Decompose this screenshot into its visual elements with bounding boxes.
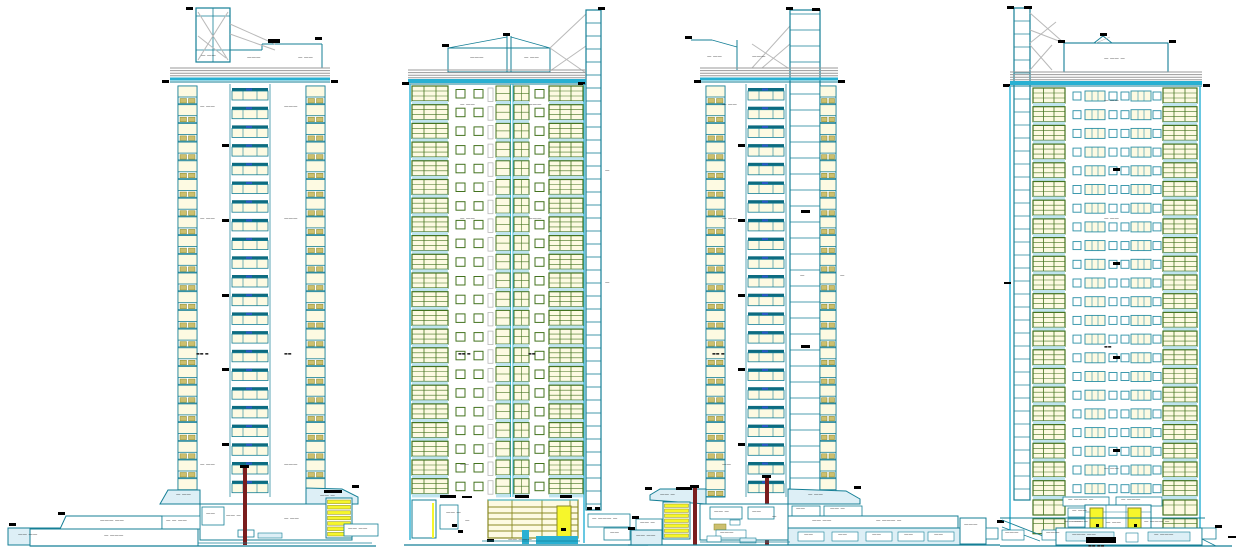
pilaster-panel (706, 236, 725, 247)
grid-window (1163, 443, 1197, 458)
grid-window (412, 367, 448, 382)
pilaster-vent (308, 99, 315, 104)
square-window (1073, 316, 1081, 324)
pilaster-vent (822, 211, 828, 216)
balcony-strip (488, 350, 493, 364)
grid-window (412, 273, 448, 288)
drawing-rect (801, 210, 810, 213)
balcony-strip (488, 443, 493, 457)
grid-window (549, 367, 583, 382)
dimension-marker (685, 36, 692, 39)
square-window (474, 333, 483, 342)
pilaster-vent (180, 211, 187, 216)
pilaster-vent (189, 398, 196, 403)
window (232, 110, 268, 119)
window (748, 110, 784, 119)
dimension-marker (1215, 525, 1222, 528)
window-vent (762, 406, 768, 408)
window (232, 203, 268, 212)
pilaster-vent (717, 155, 724, 160)
pilaster-vent (189, 248, 196, 253)
square-window (1153, 186, 1161, 194)
pilaster-vent (189, 211, 196, 216)
pilaster-vent (180, 416, 187, 421)
square-window (1109, 373, 1117, 381)
stair-flight (665, 519, 689, 522)
square-window (1073, 485, 1081, 493)
pilaster-vent (189, 267, 196, 272)
floor-band (496, 269, 510, 273)
pilaster-panel (820, 310, 836, 321)
balcony-strip (488, 107, 493, 121)
pilaster-vent (308, 229, 315, 234)
pilaster-vent (308, 286, 315, 291)
square-window (474, 164, 483, 173)
grid-window (1163, 238, 1197, 253)
grid-window (412, 142, 448, 157)
drawing-rect (587, 507, 592, 510)
pilaster-panel (706, 142, 725, 153)
window (748, 409, 784, 418)
drawing-rect (690, 485, 699, 488)
guy-cable (550, 48, 586, 73)
stair-flight (665, 534, 689, 537)
pilaster-vent (317, 286, 324, 291)
pilaster-vent (717, 360, 724, 365)
grid-window (549, 479, 583, 494)
pilaster-vent (822, 304, 828, 309)
drawing-rect (707, 536, 721, 542)
square-window (1121, 111, 1129, 119)
pilaster-vent (829, 304, 835, 309)
pilaster-vent (317, 435, 324, 440)
grid-window (1163, 350, 1197, 365)
pilaster-vent (822, 398, 828, 403)
pilaster-panel (820, 329, 836, 340)
pilaster-vent (180, 248, 187, 253)
pilaster-vent (829, 267, 835, 272)
drawing-rect (1113, 262, 1120, 265)
square-window (1073, 129, 1081, 137)
pilaster-panel (306, 86, 325, 97)
pilaster-vent (180, 99, 187, 104)
pilaster-vent (308, 211, 315, 216)
balcony-strip (488, 275, 493, 289)
pilaster-panel (706, 105, 725, 116)
pilaster-panel (178, 273, 197, 284)
grid-window (412, 123, 448, 138)
pilaster-vent (308, 473, 315, 478)
pilaster-vent (189, 117, 196, 122)
window-vent (246, 425, 252, 427)
pilaster-vent (717, 173, 724, 178)
drawing-rect (240, 465, 249, 468)
square-window (1121, 391, 1129, 399)
square-window (1121, 316, 1129, 324)
drawing-rect (676, 487, 692, 490)
window (748, 222, 784, 231)
square-window (1073, 92, 1081, 100)
dimension-marker (1169, 40, 1176, 43)
pilaster-panel (178, 123, 197, 134)
pilaster-vent (708, 416, 715, 421)
window-vent (246, 313, 252, 315)
pilaster-vent (717, 117, 724, 122)
pilaster-vent (308, 379, 315, 384)
grid-window (1033, 219, 1065, 234)
grid-window (549, 161, 583, 176)
drawing-rect (452, 524, 457, 527)
pilaster-panel (706, 273, 725, 284)
floor-band (496, 400, 510, 404)
grid-window (1163, 182, 1197, 197)
pilaster-panel (820, 180, 836, 191)
pilaster-panel (820, 142, 836, 153)
grid-window (412, 423, 448, 438)
pilaster-vent (180, 286, 187, 291)
pilaster-vent (829, 342, 835, 347)
pilaster-vent (180, 473, 187, 478)
pilaster-vent (180, 435, 187, 440)
floor-band (514, 120, 529, 124)
drawing-rect (832, 532, 858, 541)
pilaster-panel (178, 404, 197, 415)
window (1131, 353, 1151, 363)
square-window (1121, 298, 1129, 306)
stair-flight (665, 514, 689, 517)
window (1131, 185, 1151, 195)
square-window (1109, 335, 1117, 343)
window-vent (762, 388, 768, 390)
square-window (1109, 204, 1117, 212)
square-window (456, 127, 465, 135)
square-window (1121, 223, 1129, 231)
floor-band (514, 101, 529, 105)
square-window (1121, 260, 1129, 268)
square-window (456, 407, 465, 416)
pilaster-vent (189, 416, 196, 421)
square-window (1073, 298, 1081, 306)
pilaster-vent (189, 473, 196, 478)
square-window (535, 220, 544, 229)
pilaster-vent (717, 379, 724, 384)
floor-band (514, 363, 529, 367)
square-window (1073, 260, 1081, 268)
floor-band (514, 176, 529, 180)
window (1131, 147, 1151, 157)
dimension-marker (694, 80, 701, 83)
grid-window (549, 423, 583, 438)
window (1085, 484, 1105, 494)
pilaster-panel (178, 254, 197, 265)
floor-band (496, 288, 510, 292)
window-vent (246, 163, 252, 165)
truss-brace (762, 44, 790, 68)
grid-window (1033, 425, 1065, 440)
pilaster-panel (820, 292, 836, 303)
pilaster-vent (708, 117, 715, 122)
pilaster-vent (708, 360, 715, 365)
dimension-marker (738, 443, 745, 446)
window (232, 353, 268, 362)
grid-window (549, 329, 583, 344)
pilaster-vent (708, 379, 715, 384)
pilaster-vent (708, 304, 715, 309)
floor-band (496, 494, 510, 498)
grid-window (412, 385, 448, 400)
square-window (456, 202, 465, 211)
pilaster-vent (308, 398, 315, 403)
pilaster-panel (306, 367, 325, 378)
pilaster-vent (317, 398, 324, 403)
square-window (474, 183, 483, 192)
pilaster-panel (820, 367, 836, 378)
square-window (1073, 335, 1081, 343)
square-window (1121, 148, 1129, 156)
podium-slab (788, 516, 958, 528)
window (748, 166, 784, 175)
floor-band (496, 475, 510, 479)
square-window (1121, 186, 1129, 194)
drawing-rect (1004, 282, 1011, 284)
roof-parapet-band (700, 78, 838, 81)
square-window (1153, 335, 1161, 343)
floor-band (496, 101, 510, 105)
stair-flight (328, 511, 351, 515)
grid-window (549, 404, 583, 419)
grid-window (1033, 369, 1065, 384)
standpipe-column (243, 468, 247, 545)
grid-window (412, 217, 448, 232)
pilaster-vent (822, 379, 828, 384)
pilaster-vent (189, 379, 196, 384)
dimension-marker (9, 523, 16, 526)
grid-window (1033, 256, 1065, 271)
drawing-rect (986, 528, 998, 539)
grid-window (412, 460, 448, 475)
square-window (474, 258, 483, 267)
square-window (1109, 485, 1117, 493)
square-window (456, 277, 465, 286)
pilaster-panel (178, 142, 197, 153)
grid-window (1163, 200, 1197, 215)
pilaster-vent (717, 136, 724, 141)
building-elevation-b-front (402, 7, 648, 545)
dimension-marker (738, 144, 745, 147)
window (748, 297, 784, 306)
square-window (456, 370, 465, 379)
floor-band (514, 344, 529, 348)
window-vent (246, 257, 252, 259)
grid-window (1163, 88, 1197, 103)
pilaster-panel (306, 385, 325, 396)
floor-band (496, 232, 510, 236)
pilaster-panel (820, 105, 836, 116)
building-elevation-a-side (8, 7, 378, 546)
window (232, 91, 268, 100)
square-window (474, 295, 483, 304)
window-vent (762, 219, 768, 221)
roof-pitch (448, 37, 507, 48)
pilaster-panel (306, 180, 325, 191)
pilaster-vent (189, 192, 196, 197)
entrance-door (557, 506, 571, 537)
pilaster-vent (717, 435, 724, 440)
square-window (456, 426, 465, 435)
square-window (474, 127, 483, 135)
pilaster-vent (708, 229, 715, 234)
grid-window (412, 404, 448, 419)
roof-parapet-band (408, 79, 586, 83)
pilaster-vent (308, 192, 315, 197)
grid-window (1033, 144, 1065, 159)
square-window (1121, 204, 1129, 212)
drawing-rect (258, 533, 282, 538)
drawing-rect (1113, 449, 1120, 452)
window (232, 334, 268, 343)
window (1085, 166, 1105, 176)
grid-window (1033, 406, 1065, 421)
pilaster-panel (306, 198, 325, 209)
window-vent (246, 294, 252, 296)
pilaster-vent (180, 304, 187, 309)
drawing-rect (1148, 532, 1190, 541)
balcony-strip (488, 462, 493, 476)
square-window (474, 314, 483, 323)
drawing-rect (812, 8, 820, 11)
square-window (474, 202, 483, 211)
square-window (1109, 316, 1117, 324)
drawing-rect (324, 490, 342, 493)
pilaster-vent (829, 229, 835, 234)
dimension-marker (315, 37, 322, 40)
pilaster-panel (306, 161, 325, 172)
pilaster-vent (189, 99, 196, 104)
window (1085, 315, 1105, 325)
pilaster-vent (717, 99, 724, 104)
grid-window (1033, 107, 1065, 122)
roof-equipment (268, 39, 280, 43)
window-vent (762, 163, 768, 165)
floor-band (496, 138, 510, 142)
dimension-marker (487, 539, 494, 542)
square-window (1073, 279, 1081, 287)
pilaster-panel (706, 217, 725, 228)
window (748, 241, 784, 250)
floor-band (514, 325, 529, 329)
window-vent (246, 369, 252, 371)
floor-band (514, 400, 529, 404)
balcony-strip (488, 312, 493, 326)
floor-band (514, 138, 529, 142)
square-window (456, 464, 465, 473)
drawing-rect (714, 524, 726, 530)
drawing-rect (440, 495, 456, 498)
balcony-strip (488, 163, 493, 177)
window (1131, 334, 1151, 344)
drawing-rect (1113, 168, 1120, 171)
grid-window (1033, 294, 1065, 309)
square-window (1121, 410, 1129, 418)
balcony-strip (488, 294, 493, 308)
pilaster-vent (189, 360, 196, 365)
square-window (1121, 466, 1129, 474)
grid-window (1163, 256, 1197, 271)
square-window (1121, 485, 1129, 493)
square-window (1121, 167, 1129, 175)
dimension-marker (854, 486, 861, 489)
pilaster-vent (317, 192, 324, 197)
floor-band (1163, 496, 1197, 500)
grid-window (412, 180, 448, 195)
square-window (535, 127, 544, 135)
grid-window (1033, 125, 1065, 140)
stair-flight (328, 505, 351, 509)
pilaster-vent (180, 117, 187, 122)
pilaster-vent (822, 416, 828, 421)
window-vent (246, 89, 252, 91)
grid-window (1033, 500, 1065, 515)
window (1085, 353, 1105, 363)
square-window (535, 164, 544, 173)
pilaster-vent (822, 286, 828, 291)
pilaster-panel (178, 236, 197, 247)
square-window (1073, 410, 1081, 418)
square-window (474, 482, 483, 491)
window (1085, 428, 1105, 438)
square-window (1073, 223, 1081, 231)
floor-band (496, 120, 510, 124)
window (232, 241, 268, 250)
square-window (1073, 466, 1081, 474)
square-window (535, 314, 544, 323)
square-window (456, 389, 465, 398)
window (232, 428, 268, 437)
pilaster-vent (708, 435, 715, 440)
pilaster-vent (708, 192, 715, 197)
pilaster-vent (308, 136, 315, 141)
pilaster-vent (308, 416, 315, 421)
pilaster-vent (180, 360, 187, 365)
square-window (1121, 242, 1129, 250)
pilaster-vent (189, 155, 196, 160)
square-window (1153, 148, 1161, 156)
drawing-rect (1100, 33, 1107, 36)
grid-window (1033, 182, 1065, 197)
pilaster-vent (308, 304, 315, 309)
window (1131, 409, 1151, 419)
drawing-rect (344, 524, 378, 536)
pilaster-vent (829, 117, 835, 122)
grid-window (549, 385, 583, 400)
square-window (474, 90, 483, 99)
square-window (474, 220, 483, 229)
floor-band (514, 475, 529, 479)
drawing-rect (798, 532, 824, 541)
pilaster-vent (317, 379, 324, 384)
pilaster-vent (317, 304, 324, 309)
pilaster-panel (820, 404, 836, 415)
roof-parapet-band (170, 78, 330, 81)
dimension-marker (738, 294, 745, 297)
square-window (1121, 129, 1129, 137)
square-window (1073, 373, 1081, 381)
pilaster-vent (822, 248, 828, 253)
window (748, 428, 784, 437)
dimension-marker (1203, 84, 1210, 87)
square-window (1121, 279, 1129, 287)
pilaster-vent (180, 155, 187, 160)
